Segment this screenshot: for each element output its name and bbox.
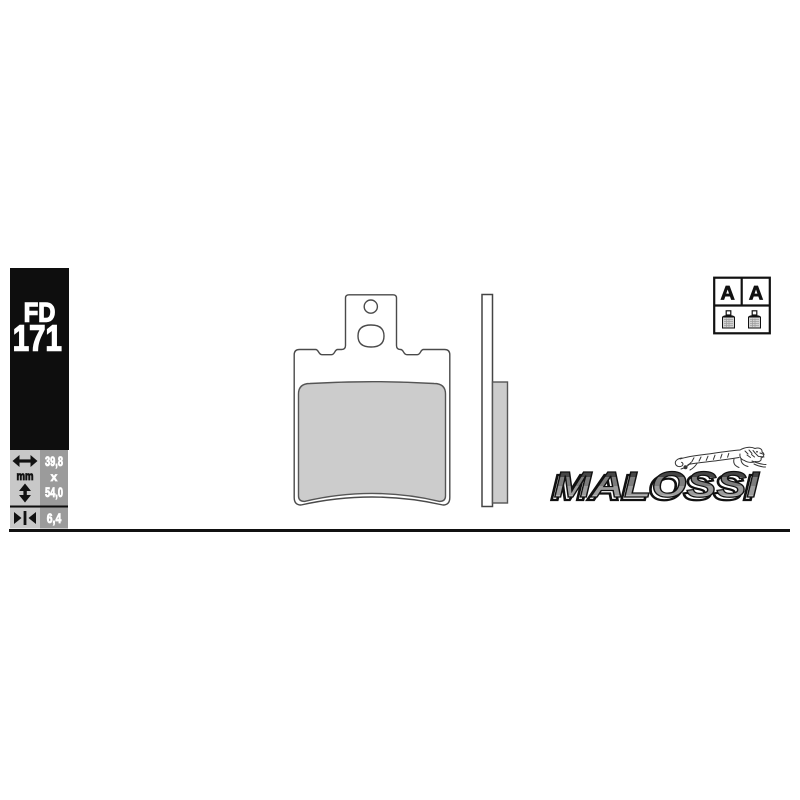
svg-text:54,0: 54,0: [45, 485, 63, 500]
svg-text:MALOSSI: MALOSSI: [554, 464, 760, 505]
svg-text:x: x: [51, 470, 58, 484]
svg-text:A: A: [721, 283, 735, 305]
svg-text:A: A: [749, 283, 763, 305]
svg-text:6,4: 6,4: [47, 511, 62, 526]
svg-text:171: 171: [13, 318, 62, 359]
svg-text:mm: mm: [17, 471, 34, 483]
svg-text:39,8: 39,8: [45, 454, 63, 469]
